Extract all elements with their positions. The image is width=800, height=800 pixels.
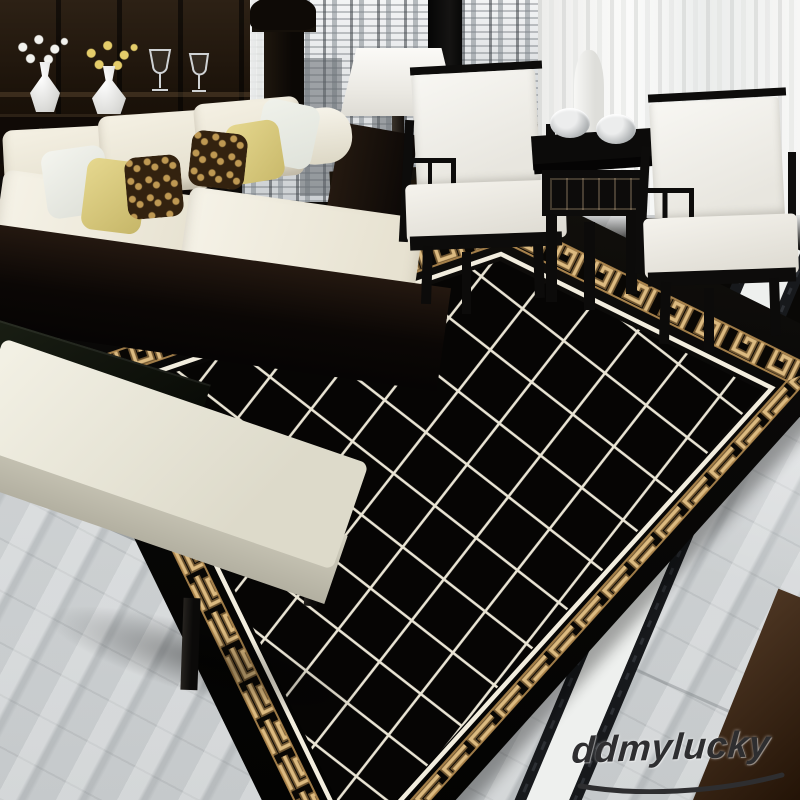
table-leg [584,222,595,310]
tea-bowl [596,114,636,144]
chair-leg [704,288,714,352]
chair-leg [421,246,433,304]
tea-bowl [550,108,590,138]
patterned-brown-pillow [123,154,184,221]
table-leg [546,214,557,302]
chair-leg [462,252,471,314]
chair-leg [659,282,671,344]
armchair-right [636,84,800,346]
watermark-text: ddmylucky [570,722,799,772]
watermark-underline-swoosh [576,772,788,794]
patterned-brown-pillow [187,129,249,191]
chair-leg [769,278,781,336]
watermark: ddmylucky [572,726,797,796]
bench-leg [180,598,200,691]
fretwork-carving [550,178,642,210]
white-sofa [0,88,452,358]
living-room-photo: ddmylucky [0,0,800,800]
